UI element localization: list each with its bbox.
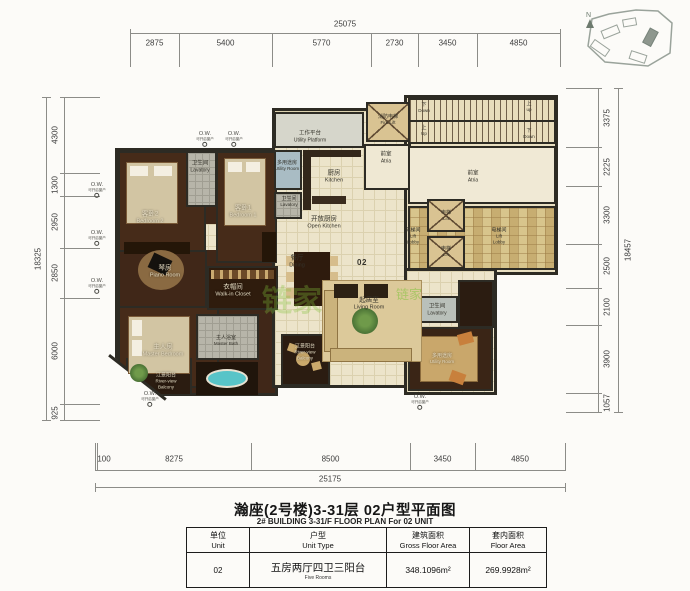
living-plant bbox=[352, 308, 378, 334]
dim-bottom-seg-1: 8275 bbox=[165, 455, 183, 464]
ow-marker-2: O.W.可开启窗户 bbox=[88, 182, 106, 198]
room-label-lav-right: 卫生间Lavatory bbox=[427, 303, 446, 316]
window-circle-icon bbox=[232, 142, 237, 147]
dim-end-tick bbox=[42, 97, 51, 98]
dim-top-seg-0: 2875 bbox=[146, 39, 164, 48]
room-label-living: 起居室Living Room bbox=[354, 297, 385, 312]
room-label-bedroom1: 客卧1Bedroom 1 bbox=[230, 205, 257, 220]
dim-tick bbox=[60, 404, 100, 405]
dim-right-seg-3: 2500 bbox=[603, 257, 612, 275]
dim-tick bbox=[477, 33, 478, 67]
dim-end-tick bbox=[614, 412, 623, 413]
room-label-stair-up-a: 上up bbox=[526, 101, 531, 113]
header-floor-area: 套内面积 Floor Area bbox=[470, 528, 547, 553]
room-label-balcony-center: 江景阳台River-viewBalcony bbox=[294, 343, 315, 361]
dim-tick bbox=[418, 33, 419, 67]
dim-tick bbox=[60, 420, 100, 421]
dim-tick bbox=[475, 443, 476, 471]
room-label-master-bedroom: 主人房Master Bedroom bbox=[143, 344, 184, 359]
dim-top-seg-2: 5770 bbox=[313, 39, 331, 48]
window-circle-icon bbox=[95, 193, 100, 198]
room-label-closet: 衣帽间Walk-in Closet bbox=[215, 284, 250, 299]
room-label-lift-a: 电梯Lift bbox=[441, 210, 451, 222]
kitchen-counter-top bbox=[311, 150, 361, 157]
dim-end-tick bbox=[614, 88, 623, 89]
window-circle-icon bbox=[148, 402, 153, 407]
dim-end-tick bbox=[560, 29, 561, 38]
dim-tick bbox=[566, 186, 602, 187]
dim-tick bbox=[566, 147, 602, 148]
site-building bbox=[629, 51, 647, 64]
dim-tick bbox=[566, 88, 602, 89]
dim-tick bbox=[60, 248, 100, 249]
dim-tick bbox=[130, 33, 131, 67]
watermark-small: 链家 bbox=[396, 284, 422, 303]
dim-tick bbox=[60, 298, 100, 299]
bathtub bbox=[206, 369, 248, 388]
unit-info-table: 单位 Unit 户型 Unit Type 建筑面积 Gross Floor Ar… bbox=[186, 527, 547, 588]
room-label-master-bath: 主人浴室Master Bath bbox=[214, 335, 238, 347]
dim-right-overall: 18457 bbox=[624, 239, 633, 261]
dining-chair bbox=[330, 256, 338, 266]
ow-marker-4: O.W.可开启窗户 bbox=[88, 278, 106, 294]
dim-right-seg-4: 2100 bbox=[603, 298, 612, 316]
dim-left-overall: 18325 bbox=[34, 247, 43, 269]
room-label-atria-left: 前室Atria bbox=[380, 151, 391, 164]
dim-tick bbox=[251, 443, 252, 471]
room-label-atria-right: 前室Atria bbox=[467, 170, 478, 183]
dim-right-seg-0: 3375 bbox=[603, 109, 612, 127]
window-circle-icon bbox=[95, 241, 100, 246]
sheet-subtitle: 2# BUILDING 3-31/F FLOOR PLAN For 02 UNI… bbox=[257, 517, 433, 526]
header-gross-area: 建筑面积 Gross Floor Area bbox=[387, 528, 470, 553]
dim-right-seg-6: 1057 bbox=[603, 394, 612, 412]
dim-left-seg-0: 4300 bbox=[51, 126, 60, 144]
dim-right-seg-1: 2225 bbox=[603, 158, 612, 176]
header-unit: 单位 Unit bbox=[187, 528, 250, 553]
dim-tick bbox=[60, 97, 100, 98]
dim-top-overall: 25075 bbox=[334, 20, 356, 29]
room-label-piano: 琴房Piano Room bbox=[150, 265, 180, 280]
wardrobe-bedroom1 bbox=[262, 232, 276, 262]
pillow bbox=[154, 166, 172, 176]
pillow bbox=[130, 166, 148, 176]
dim-right-seg-2: 3300 bbox=[603, 206, 612, 224]
room-label-stair-up-b: 上Up bbox=[421, 125, 427, 137]
dim-bottom-seg-4: 4850 bbox=[511, 455, 529, 464]
pillow bbox=[228, 162, 242, 172]
dim-overall-line-left bbox=[46, 97, 47, 420]
room-label-bedroom2: 客卧2Bedroom 2 bbox=[137, 211, 164, 226]
ow-marker-1: O.W.可开启窗户 bbox=[225, 131, 243, 147]
room-label-utility-right: 多用途房Utility Room bbox=[430, 353, 454, 365]
ow-marker-0: O.W.可开启窗户 bbox=[196, 131, 214, 147]
room-label-balcony-left: 江景阳台River-viewBalcony bbox=[155, 372, 176, 390]
dim-bottom-seg-2: 8500 bbox=[322, 455, 340, 464]
dim-tick bbox=[371, 33, 372, 67]
dim-line-bottom bbox=[95, 470, 565, 471]
room-label-kitchen: 厨房Kitchen bbox=[325, 170, 343, 185]
dim-end-tick bbox=[42, 420, 51, 421]
dim-tick bbox=[272, 33, 273, 67]
room-label-lobby-right: 电梯间LiftLobby bbox=[491, 227, 506, 245]
dim-end-tick bbox=[95, 483, 96, 492]
ow-marker-6: O.W.可开启窗户 bbox=[411, 394, 429, 410]
site-building bbox=[590, 40, 609, 57]
window-circle-icon bbox=[418, 405, 423, 410]
pillow bbox=[132, 320, 142, 336]
room-label-open-kitchen: 开放厨房Open Kitchen bbox=[307, 216, 340, 231]
kitchen-island bbox=[312, 196, 346, 204]
dim-top-seg-4: 3450 bbox=[439, 39, 457, 48]
dim-end-tick bbox=[565, 483, 566, 492]
dim-tick bbox=[566, 393, 602, 394]
dim-tick bbox=[60, 173, 100, 174]
dim-tick bbox=[565, 443, 566, 471]
pillow bbox=[132, 340, 142, 356]
site-building bbox=[601, 25, 620, 39]
window-circle-icon bbox=[95, 289, 100, 294]
staircase-divider bbox=[408, 120, 556, 122]
dim-end-tick bbox=[130, 29, 131, 38]
north-label: N bbox=[586, 12, 591, 19]
dim-line-left bbox=[64, 97, 65, 420]
room-label-utility-left: 多用途房Utility Room bbox=[275, 160, 299, 172]
dim-tick bbox=[566, 244, 602, 245]
room-label-stair-down-a: 下Down bbox=[418, 102, 430, 114]
site-key-plan: N bbox=[576, 6, 680, 76]
cell-unit: 02 bbox=[187, 553, 250, 588]
dim-overall-line-right bbox=[618, 88, 619, 412]
dim-tick bbox=[179, 33, 180, 67]
room-label-fire-lift: 消防电梯Fire Lift bbox=[378, 114, 398, 126]
atria-right-floor bbox=[408, 146, 556, 204]
room-label-lav-left: 卫生间Lavatory bbox=[280, 196, 297, 208]
room-label-stair-down-b: 下Down bbox=[523, 128, 535, 140]
room-label-lift-b: 电梯Lift bbox=[441, 246, 451, 258]
dim-left-seg-1: 1300 bbox=[51, 176, 60, 194]
dim-tick bbox=[410, 443, 411, 471]
storage-closet bbox=[458, 280, 494, 328]
dim-tick bbox=[560, 33, 561, 67]
pillow bbox=[246, 162, 260, 172]
ow-marker-3: O.W.可开启窗户 bbox=[88, 230, 106, 246]
ow-marker-5: O.W.可开启窗户 bbox=[141, 391, 159, 407]
dim-left-seg-3: 2850 bbox=[51, 264, 60, 282]
dim-tick bbox=[566, 288, 602, 289]
dim-left-seg-4: 6000 bbox=[51, 342, 60, 360]
dim-bottom-seg-3: 3450 bbox=[434, 455, 452, 464]
dim-bottom-overall: 25175 bbox=[319, 475, 341, 484]
dim-tick bbox=[566, 325, 602, 326]
dim-top-seg-3: 2730 bbox=[386, 39, 404, 48]
table-header-row: 单位 Unit 户型 Unit Type 建筑面积 Gross Floor Ar… bbox=[187, 528, 547, 553]
cell-floor-area: 269.9928m² bbox=[470, 553, 547, 588]
room-label-unit-mark: 02 bbox=[357, 258, 367, 268]
sofa-bottom bbox=[330, 348, 412, 362]
dim-right-seg-5: 3900 bbox=[603, 350, 612, 368]
dim-overall-line-bottom bbox=[95, 487, 565, 488]
dim-top-seg-1: 5400 bbox=[217, 39, 235, 48]
dim-line-right bbox=[598, 88, 599, 412]
dim-tick bbox=[566, 412, 602, 413]
room-label-lobby-left: 电梯间LiftLobby bbox=[405, 227, 420, 245]
dim-top-seg-5: 4850 bbox=[510, 39, 528, 48]
room-label-lav-top: 卫生间Lavatory bbox=[190, 160, 209, 173]
cell-gross-area: 348.1096m² bbox=[387, 553, 470, 588]
window-circle-icon bbox=[203, 142, 208, 147]
dim-left-seg-2: 2950 bbox=[51, 213, 60, 231]
table-data-row: 02 五房两厅四卫三阳台 Five Rooms 348.1096m² 269.9… bbox=[187, 553, 547, 588]
north-arrow-icon bbox=[586, 19, 594, 28]
dim-overall-line-top bbox=[130, 33, 560, 34]
dim-left-seg-5: 925 bbox=[51, 406, 60, 419]
floorplan-sheet: N 链家 链家 瀚座(2号楼)3-31层 02户型平面图 2# BUILDING… bbox=[0, 0, 690, 591]
lavatory-top-floor bbox=[186, 151, 217, 207]
watermark: 链家 bbox=[262, 276, 322, 320]
room-label-dining: 餐厅Dining bbox=[289, 255, 305, 270]
balcony-plant bbox=[130, 364, 148, 382]
kitchen-counter-left bbox=[303, 150, 311, 210]
header-unit-type: 户型 Unit Type bbox=[250, 528, 387, 553]
sofa-left bbox=[324, 290, 338, 352]
dim-bottom-seg-0: 100 bbox=[97, 455, 110, 464]
cell-unit-type: 五房两厅四卫三阳台 Five Rooms bbox=[250, 553, 387, 588]
room-label-utility-platform: 工作平台Utility Platform bbox=[294, 130, 326, 143]
site-building-highlighted bbox=[643, 28, 658, 46]
site-building bbox=[623, 18, 637, 27]
dim-tick bbox=[95, 443, 96, 471]
